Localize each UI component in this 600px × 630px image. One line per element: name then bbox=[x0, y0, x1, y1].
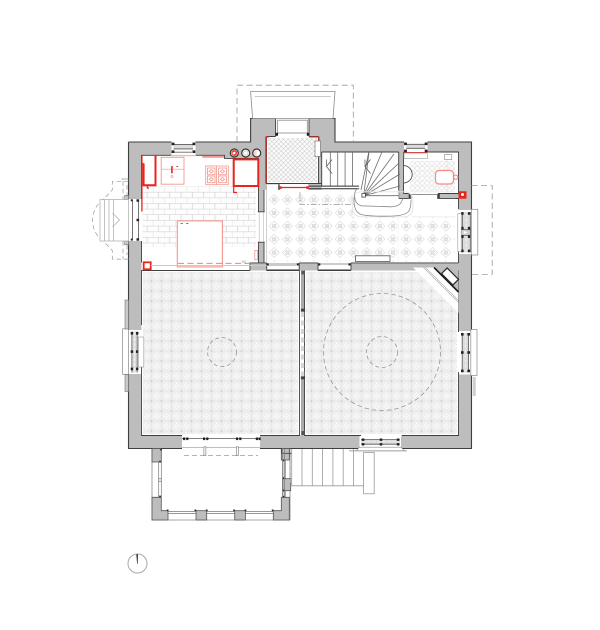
svg-text:90: 90 bbox=[242, 259, 247, 264]
